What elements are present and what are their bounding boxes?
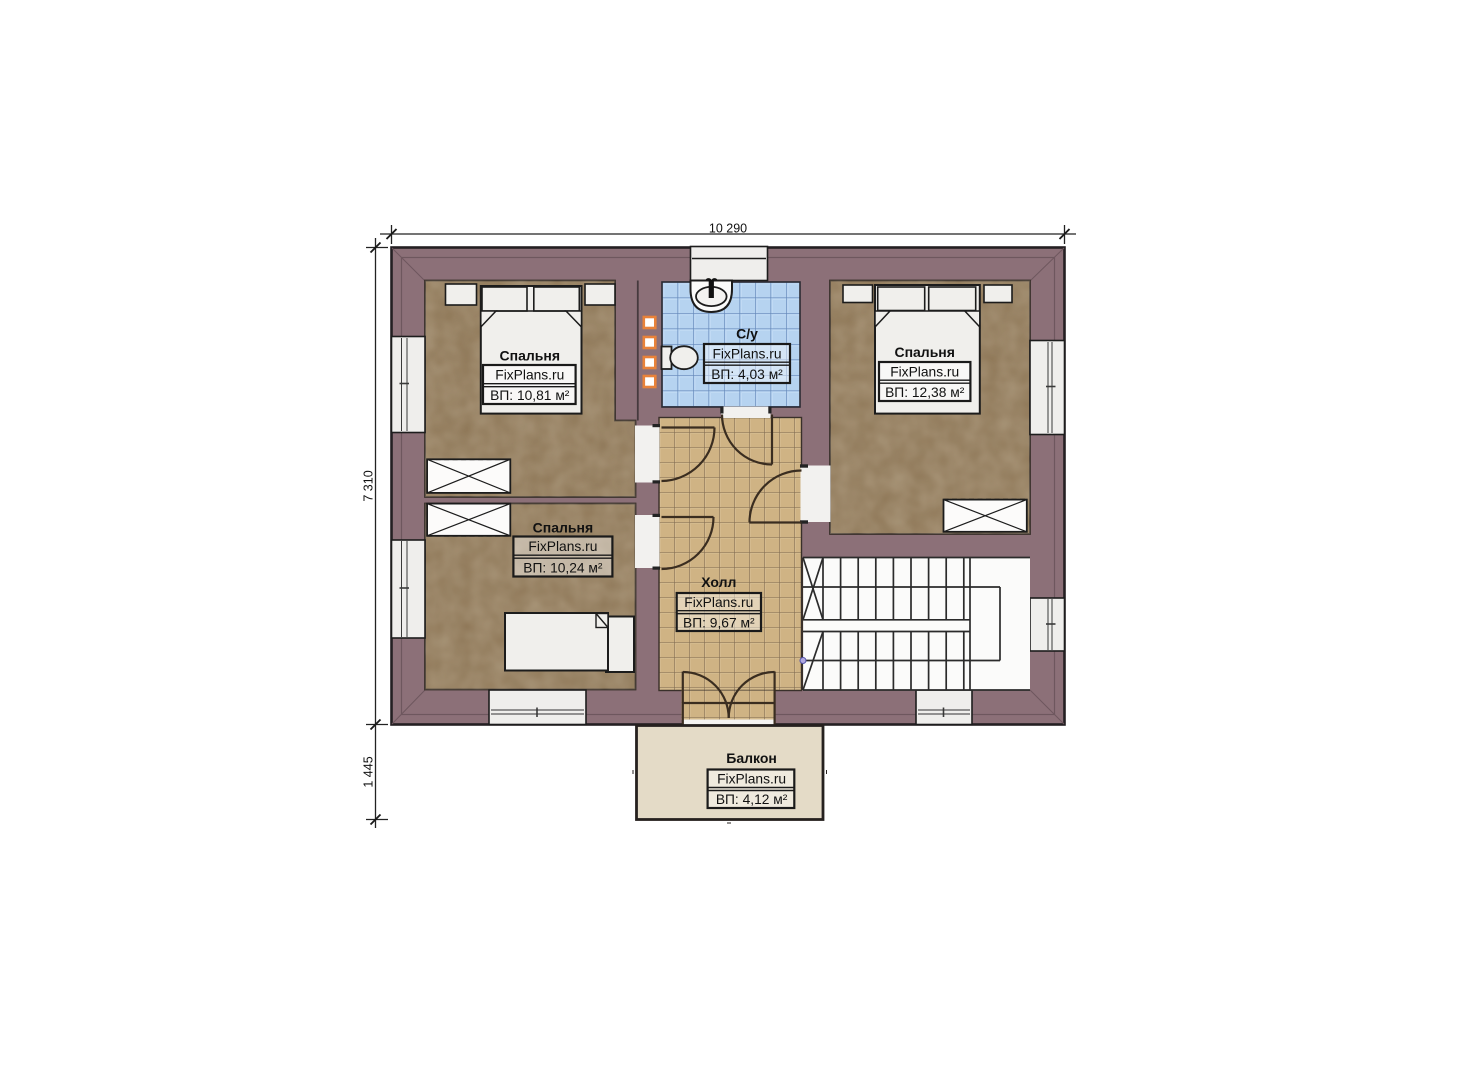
svg-text:Спальня: Спальня <box>894 344 954 360</box>
svg-text:ВП: 9,67 м²: ВП: 9,67 м² <box>683 616 755 631</box>
svg-text:Балкон: Балкон <box>726 750 777 766</box>
svg-text:FixPlans.ru: FixPlans.ru <box>684 595 753 610</box>
svg-text:FixPlans.ru: FixPlans.ru <box>717 772 786 787</box>
svg-text:Спальня: Спальня <box>533 520 593 536</box>
svg-text:С/у: С/у <box>736 326 758 342</box>
svg-text:FixPlans.ru: FixPlans.ru <box>495 367 564 382</box>
svg-text:ВП: 4,03 м²: ВП: 4,03 м² <box>711 367 783 382</box>
svg-text:ВП: 10,24 м²: ВП: 10,24 м² <box>523 561 603 576</box>
svg-text:FixPlans.ru: FixPlans.ru <box>890 364 959 379</box>
svg-text:Холл: Холл <box>701 574 736 590</box>
svg-text:1 445: 1 445 <box>362 756 376 787</box>
svg-text:FixPlans.ru: FixPlans.ru <box>528 539 597 554</box>
svg-text:10 290: 10 290 <box>709 222 747 236</box>
svg-text:Спальня: Спальня <box>500 348 560 364</box>
svg-text:7 310: 7 310 <box>362 470 376 501</box>
svg-text:ВП: 12,38 м²: ВП: 12,38 м² <box>885 385 965 400</box>
svg-text:ВП: 4,12 м²: ВП: 4,12 м² <box>716 792 788 807</box>
svg-text:FixPlans.ru: FixPlans.ru <box>712 346 781 361</box>
svg-text:ВП: 10,81 м²: ВП: 10,81 м² <box>490 388 570 403</box>
